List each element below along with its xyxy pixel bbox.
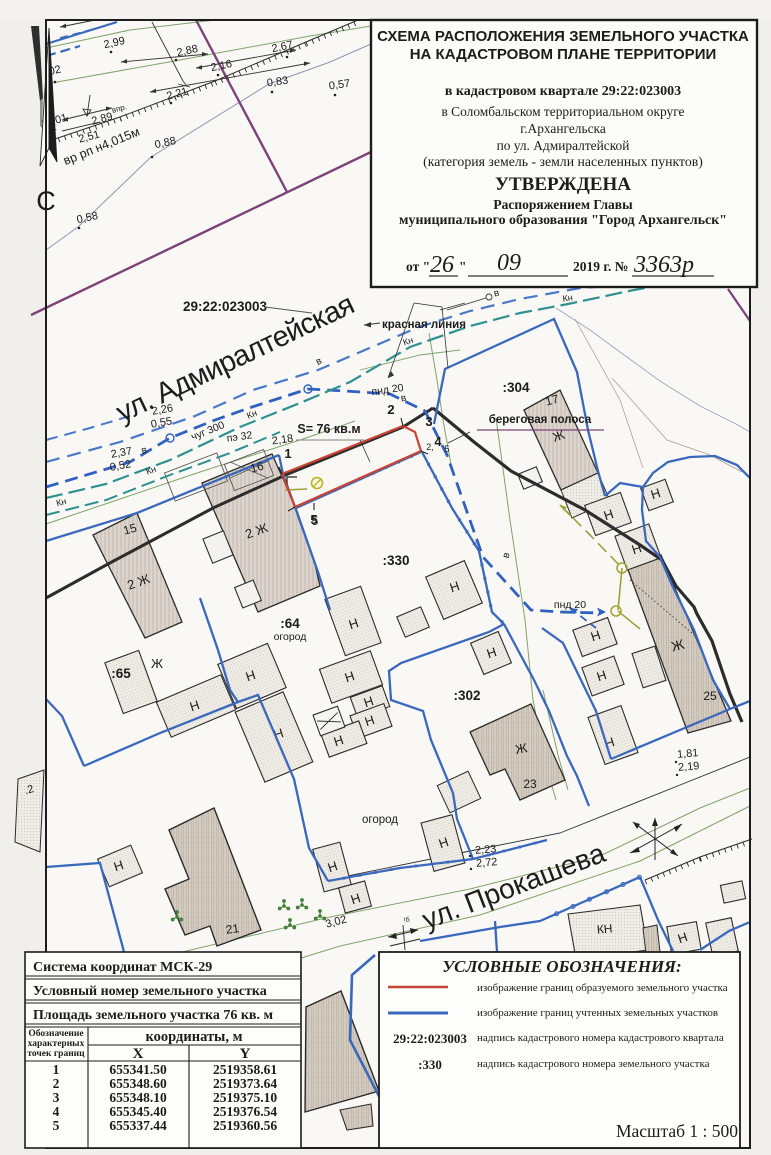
svg-text:Условный номер земельного учас: Условный номер земельного участка [33,984,267,999]
svg-text:красная линия: красная линия [382,319,466,331]
svg-text:Обозначение: Обозначение [28,1028,83,1039]
svg-text:в кадастровом квартале 29:22:0: в кадастровом квартале 29:22:023003 [445,84,681,99]
svg-text:4: 4 [434,434,442,449]
svg-text::304: :304 [502,380,530,395]
svg-text::64: :64 [280,616,300,631]
svg-text:УСЛОВНЫЕ ОБОЗНАЧЕНИЯ:: УСЛОВНЫЕ ОБОЗНАЧЕНИЯ: [442,957,681,976]
svg-text:в Соломбальском территориально: в Соломбальском территориальном округе [442,104,685,119]
svg-text:муниципального образования "Го: муниципального образования "Город Арханг… [399,213,727,228]
svg-text:3363р: 3363р [633,252,694,278]
svg-text::330: :330 [382,553,409,568]
svg-text:X: X [133,1046,144,1062]
svg-text:29:22:023003: 29:22:023003 [183,299,268,314]
svg-text:СХЕМА РАСПОЛОЖЕНИЯ ЗЕМЕЛЬНОГО: СХЕМА РАСПОЛОЖЕНИЯ ЗЕМЕЛЬНОГО УЧАСТКА [377,28,749,45]
svg-text:655348.10: 655348.10 [109,1090,167,1105]
svg-text:29:22:023003: 29:22:023003 [393,1031,467,1046]
svg-text::65: :65 [111,666,131,681]
svg-text:2,23: 2,23 [475,843,497,857]
svg-text:2519360.56: 2519360.56 [213,1118,277,1133]
svg-text:1: 1 [53,1062,60,1077]
svg-text:пнд 20: пнд 20 [554,599,586,611]
svg-text::330: :330 [418,1057,442,1072]
svg-text:": " [459,259,467,274]
svg-text:характерных: характерных [28,1039,85,1049]
svg-text:S= 76 кв.м: S= 76 кв.м [297,422,360,436]
svg-text:2519358.61: 2519358.61 [213,1062,277,1077]
svg-text:5: 5 [444,444,449,454]
svg-text:1,81: 1,81 [677,747,699,761]
svg-text:огород: огород [274,631,307,643]
svg-text::302: :302 [453,688,480,703]
svg-text:изображение границ учтенных зе: изображение границ учтенных земельных уч… [477,1007,718,1019]
svg-text:(категория земель - земли насе: (категория земель - земли населенных пун… [423,154,703,170]
svg-text:изображение границ образуемого: изображение границ образуемого земельног… [477,982,728,994]
svg-text:2519375.10: 2519375.10 [213,1090,277,1105]
svg-text:2: 2 [53,1076,60,1091]
svg-text:1: 1 [284,446,291,461]
svg-text:655348.60: 655348.60 [109,1076,167,1091]
svg-text:надпись кадастрового номера ка: надпись кадастрового номера кадастрового… [477,1032,724,1044]
svg-text:655345.40: 655345.40 [109,1104,167,1119]
svg-text:3: 3 [425,414,432,429]
svg-text:4: 4 [53,1104,60,1119]
svg-text:Система координат МСК-29: Система координат МСК-29 [33,960,212,975]
svg-text:от ": от " [406,259,430,274]
svg-text:3: 3 [53,1090,60,1105]
svg-text:КН: КН [596,921,613,936]
svg-text:Y: Y [240,1046,251,1062]
svg-text:Ж: Ж [151,656,163,671]
svg-text:2,72: 2,72 [476,856,498,870]
svg-text:огород: огород [362,814,398,826]
svg-text:2,19: 2,19 [678,760,700,774]
svg-text:26: 26 [430,252,454,278]
svg-text:береговая полоса: береговая полоса [489,414,592,426]
svg-text:Ж: Ж [514,740,528,757]
svg-text:2519373.64: 2519373.64 [213,1076,277,1091]
svg-text:25: 25 [703,689,717,703]
svg-text:655341.50: 655341.50 [109,1062,167,1077]
svg-text:2: 2 [387,402,394,417]
svg-text:Площадь земельного участка 76: Площадь земельного участка 76 кв. м [33,1008,273,1023]
svg-text:09: 09 [497,250,521,276]
svg-text:точек границ: точек границ [27,1049,85,1059]
svg-text:5: 5 [53,1118,60,1133]
svg-text:21: 21 [225,921,240,937]
svg-text:Кн: Кн [562,292,574,303]
svg-text:по ул. Адмиралтейской: по ул. Адмиралтейской [497,138,630,153]
svg-text:Масштаб 1 : 500: Масштаб 1 : 500 [616,1121,738,1141]
svg-text:2,: 2, [426,442,434,452]
svg-text:надпись кадастрового номера зе: надпись кадастрового номера земельного у… [477,1058,710,1070]
svg-text:координаты, м: координаты, м [145,1029,242,1045]
svg-text:23: 23 [523,777,537,791]
svg-text:Распоряжением Главы: Распоряжением Главы [493,197,633,212]
svg-text:655337.44: 655337.44 [109,1118,167,1133]
svg-text:2019 г. №: 2019 г. № [573,259,628,274]
svg-text:НА КАДАСТРОВОМ ПЛАНЕ ТЕРРИТОРИ: НА КАДАСТРОВОМ ПЛАНЕ ТЕРРИТОРИИ [410,46,717,63]
svg-text:5: 5 [312,514,319,528]
svg-text:УТВЕРЖДЕНА: УТВЕРЖДЕНА [495,174,631,195]
svg-text:г.Архангельска: г.Архангельска [520,121,606,136]
svg-text:2519376.54: 2519376.54 [213,1104,277,1119]
